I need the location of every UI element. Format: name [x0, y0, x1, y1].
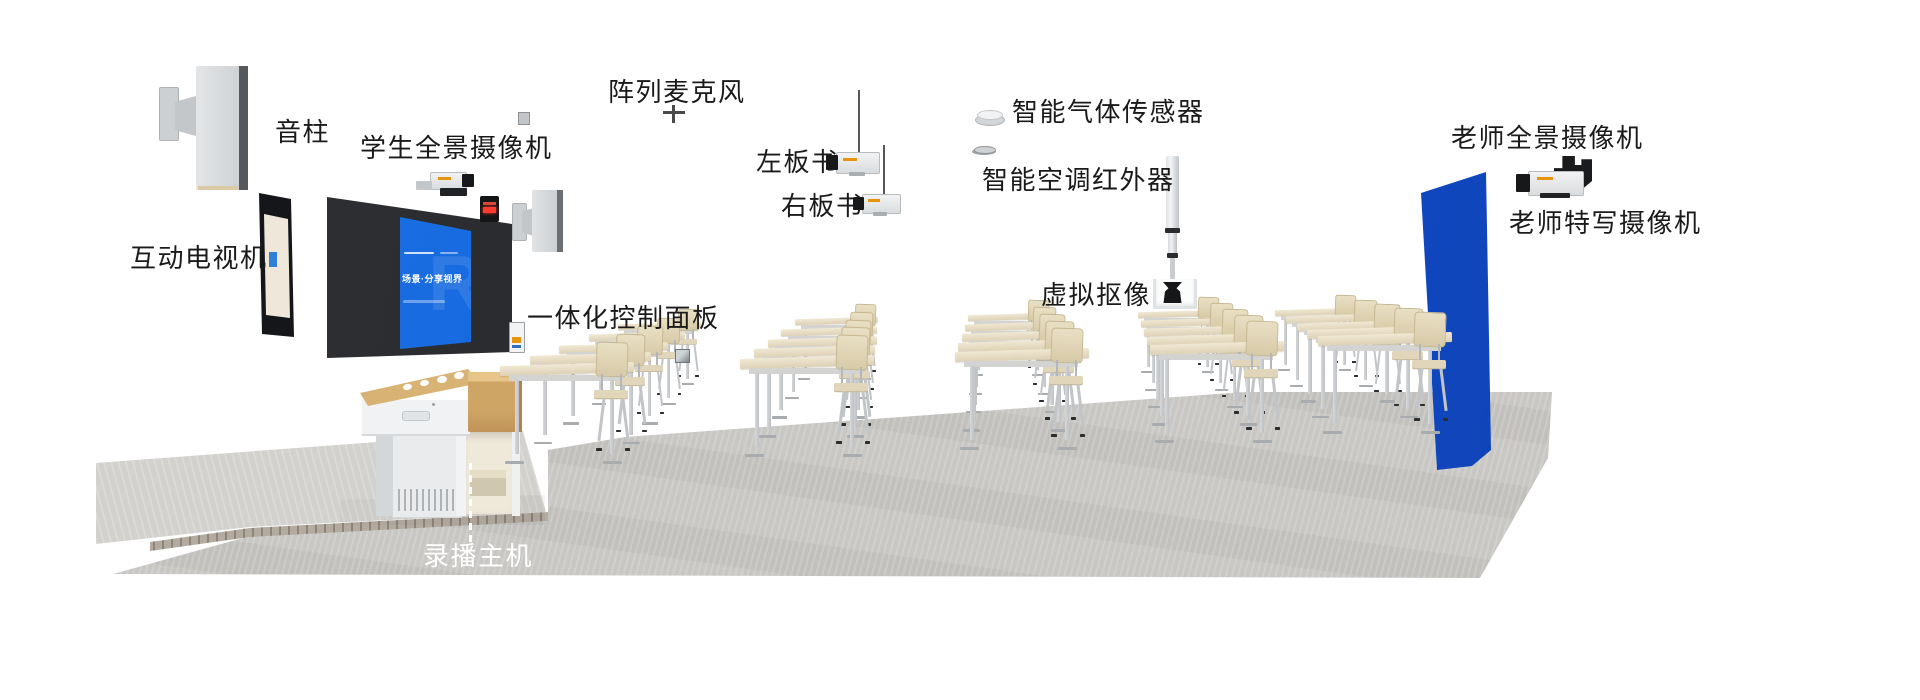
- left-board-camera-device: [836, 152, 880, 174]
- chair-leg: [639, 384, 646, 423]
- label-left-board-camera: 左板书: [756, 148, 839, 178]
- chair-foot: [642, 430, 647, 433]
- right-board-camera-foot: [873, 212, 887, 216]
- desk-foot: [1323, 431, 1342, 434]
- student-panorama-camera-lens: [462, 174, 474, 187]
- furniture-layer: [0, 0, 1920, 700]
- chair-foot: [1246, 427, 1252, 430]
- chair-seat: [594, 390, 628, 398]
- desk-foot: [1421, 431, 1440, 434]
- chair-seat: [1244, 369, 1278, 377]
- chair: [1414, 312, 1449, 422]
- chair-leg: [1052, 384, 1060, 427]
- label-teacher-panorama-camera: 老师全景摄像机: [1451, 124, 1644, 154]
- desk-leg: [970, 366, 974, 440]
- chair-post: [841, 367, 843, 384]
- speaker-left-side: [239, 66, 248, 190]
- label-gas-sensor: 智能气体传感器: [1012, 98, 1205, 128]
- smart-classroom-diagram: R 场景·分享视界: [0, 0, 1920, 700]
- wall-control-strip-key: [512, 337, 521, 343]
- chair-foot: [695, 375, 698, 377]
- virtual-keying-pole-mid: [1168, 233, 1177, 255]
- chair-post: [601, 374, 603, 391]
- chair-foot: [865, 441, 871, 444]
- label-student-panorama-camera: 学生全景摄像机: [360, 134, 553, 164]
- chair-foot: [1080, 434, 1086, 437]
- chair-post: [1419, 344, 1421, 361]
- teacher-closeup-camera-lens: [1516, 174, 1530, 192]
- chair-back: [1245, 320, 1278, 356]
- desk-leg: [515, 380, 519, 454]
- label-recording-host: 录播主机: [423, 542, 533, 572]
- label-right-board-camera: 右板书: [781, 192, 864, 222]
- chair-leg: [1439, 368, 1447, 411]
- wall-control-strip: [509, 322, 525, 353]
- teacher-camera-accent: [1537, 177, 1553, 180]
- chair-post: [620, 374, 622, 391]
- desk-foot: [745, 454, 764, 457]
- chair-foot: [1275, 427, 1281, 430]
- chair-leg: [597, 398, 605, 441]
- chair-back: [835, 334, 868, 370]
- led-timer-digits: [483, 207, 496, 213]
- chair-post: [1056, 360, 1058, 377]
- speaker-column-right: [532, 190, 563, 252]
- left-board-camera-accent: [843, 158, 857, 161]
- chair-foot: [596, 448, 602, 451]
- label-array-microphone: 阵列麦克风: [608, 78, 746, 108]
- chair: [596, 342, 631, 452]
- label-teacher-closeup-camera: 老师特写摄像机: [1509, 209, 1702, 239]
- chair-back: [1050, 327, 1083, 363]
- speaker-left-base: [198, 186, 238, 190]
- speaker-column-left: [196, 66, 248, 190]
- recording-host-dashed-line: [469, 463, 472, 545]
- chair-seat: [1412, 360, 1446, 368]
- chair-back: [1413, 311, 1446, 347]
- led-timer: [480, 196, 499, 222]
- label-interactive-tv: 互动电视机: [130, 244, 268, 274]
- student-camera-mount: [440, 188, 467, 196]
- chair-foot: [660, 412, 664, 414]
- desk-leg: [1333, 350, 1337, 424]
- virtual-keying-pole-lower: [1170, 258, 1175, 280]
- chair-foot: [836, 441, 842, 444]
- chair-foot: [1414, 418, 1420, 421]
- chair-leg: [837, 391, 845, 434]
- desk-foot: [1155, 440, 1174, 443]
- chair-post: [1270, 353, 1272, 370]
- chair-foot: [678, 393, 682, 395]
- chair-post: [638, 363, 640, 378]
- chair-post: [860, 367, 862, 384]
- chair-back: [595, 341, 628, 377]
- student-camera-accent: [438, 177, 451, 180]
- chair-leg: [1247, 377, 1255, 420]
- chair-post: [1251, 353, 1253, 370]
- left-board-camera-pole: [858, 90, 860, 153]
- speaker-right-side: [557, 190, 563, 252]
- chair-post: [1075, 360, 1077, 377]
- wall-control-strip-key2: [512, 345, 521, 348]
- led-timer-row1: [483, 202, 496, 205]
- chair-leg: [1076, 384, 1084, 427]
- gas-sensor-device: [977, 110, 1003, 120]
- desk-foot: [505, 461, 524, 464]
- chair: [836, 335, 871, 445]
- right-board-camera-accent: [868, 199, 880, 202]
- chair-leg: [861, 391, 869, 434]
- chair-leg: [693, 344, 698, 371]
- chair-foot: [625, 448, 631, 451]
- student-camera-arm: [416, 181, 432, 190]
- teacher-camera-foot: [1540, 193, 1570, 198]
- desk-foot: [960, 447, 979, 450]
- chair-foot: [1443, 418, 1449, 421]
- chair-post: [1438, 344, 1440, 361]
- label-ac-infrared: 智能空调红外器: [982, 166, 1175, 196]
- label-control-panel: 一体化控制面板: [527, 304, 720, 334]
- label-virtual-keying: 虚拟抠像: [1041, 281, 1151, 311]
- right-board-camera-device: [862, 194, 901, 214]
- chair-leg: [621, 398, 629, 441]
- chair-post: [656, 352, 658, 366]
- desk-leg: [1165, 359, 1169, 433]
- desk-foot: [843, 454, 862, 457]
- desk-foot: [1058, 447, 1077, 450]
- ac-infrared-device: [974, 146, 996, 154]
- chair: [1051, 328, 1086, 438]
- desk-foot: [1253, 440, 1272, 443]
- left-board-camera-foot: [849, 172, 865, 176]
- desk-foot: [603, 461, 622, 464]
- chair-leg: [1415, 368, 1423, 411]
- chair: [1246, 321, 1281, 431]
- control-panel-device: [675, 349, 690, 363]
- chair-seat: [1049, 376, 1083, 384]
- chair-leg: [657, 371, 663, 406]
- chair-seat: [834, 383, 868, 391]
- right-board-camera-pole: [883, 145, 885, 195]
- wall-sensor: [518, 112, 530, 125]
- chair-leg: [1271, 377, 1279, 420]
- desk-leg: [755, 373, 759, 447]
- label-speaker-column: 音柱: [275, 118, 330, 148]
- chair-foot: [1051, 434, 1057, 437]
